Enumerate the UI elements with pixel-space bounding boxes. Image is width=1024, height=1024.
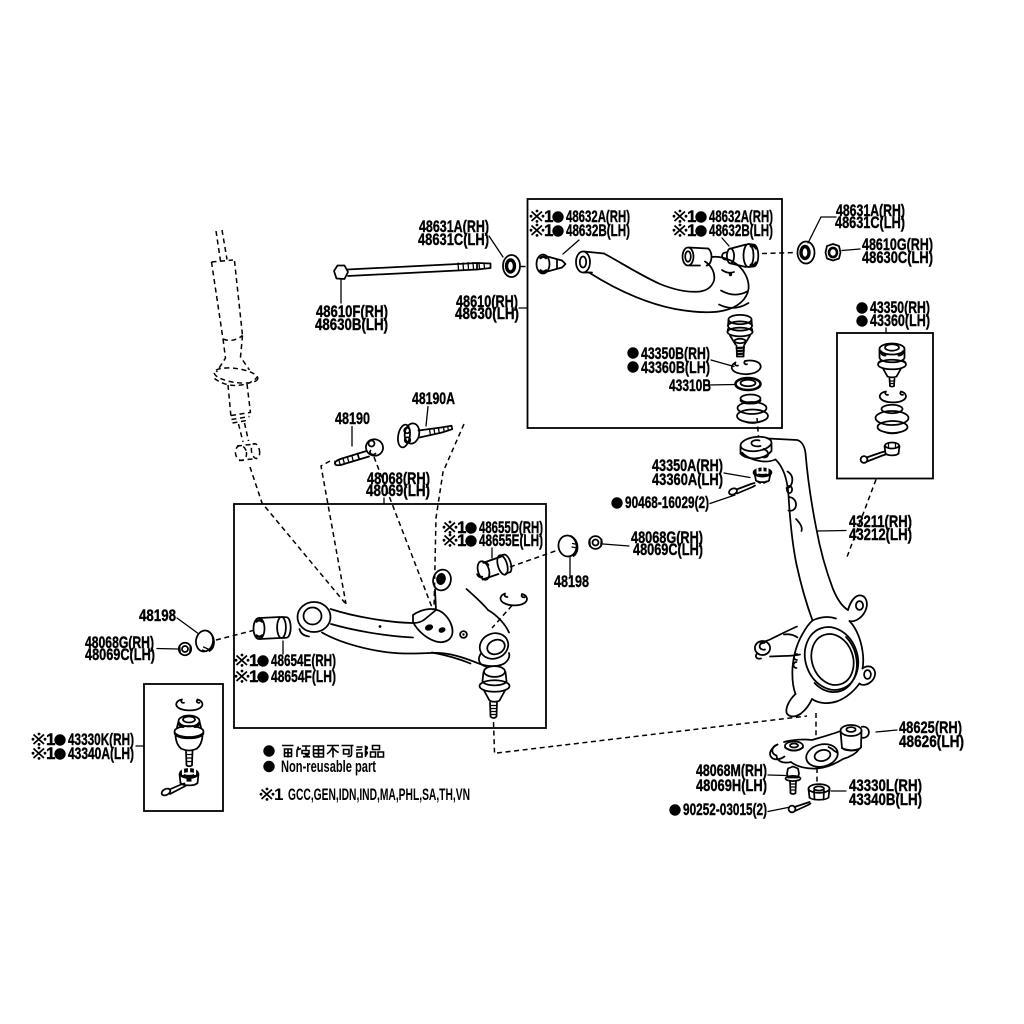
svg-text:43340B(LH): 43340B(LH) xyxy=(849,790,922,809)
svg-text:48069H(LH): 48069H(LH) xyxy=(696,776,767,795)
svg-text:48630C(LH): 48630C(LH) xyxy=(862,248,933,267)
svg-text:48198: 48198 xyxy=(554,572,589,591)
svg-text:48632B(LH): 48632B(LH) xyxy=(709,221,773,240)
svg-text:Non-reusable part: Non-reusable part xyxy=(281,757,376,776)
svg-text:48069C(LH): 48069C(LH) xyxy=(85,645,155,664)
svg-text:43212(LH): 43212(LH) xyxy=(849,525,912,544)
svg-text:48069(LH): 48069(LH) xyxy=(366,481,430,500)
svg-text:48630B(LH): 48630B(LH) xyxy=(315,315,388,334)
svg-text:43360(LH): 43360(LH) xyxy=(870,311,930,330)
svg-text:43310B: 43310B xyxy=(669,376,711,395)
svg-text:48069C(LH): 48069C(LH) xyxy=(633,540,703,559)
svg-text:48655E(LH): 48655E(LH) xyxy=(479,531,543,550)
svg-text:1: 1 xyxy=(46,744,55,763)
svg-text:90468-16029(2): 90468-16029(2) xyxy=(625,493,709,512)
svg-text:48630(LH): 48630(LH) xyxy=(455,304,519,323)
svg-text:43360B(LH): 43360B(LH) xyxy=(641,358,710,377)
svg-text:1: 1 xyxy=(687,221,696,240)
svg-text:48626(LH): 48626(LH) xyxy=(899,732,964,751)
svg-text:48198: 48198 xyxy=(139,606,176,625)
svg-text:48631C(LH): 48631C(LH) xyxy=(835,213,905,232)
svg-text:1: 1 xyxy=(274,785,283,804)
svg-text:90252-03015(2): 90252-03015(2) xyxy=(683,800,767,819)
svg-text:1: 1 xyxy=(544,221,553,240)
svg-text:43340A(LH): 43340A(LH) xyxy=(68,744,134,763)
svg-text:48190A: 48190A xyxy=(412,389,455,408)
svg-text:GCC,GEN,IDN,IND,MA,PHL,SA,TH,V: GCC,GEN,IDN,IND,MA,PHL,SA,TH,VN xyxy=(288,785,470,804)
svg-text:48631C(LH): 48631C(LH) xyxy=(418,230,489,249)
svg-text:1: 1 xyxy=(457,531,466,550)
svg-text:1: 1 xyxy=(249,667,258,686)
svg-text:48654F(LH): 48654F(LH) xyxy=(271,667,336,686)
svg-text:48190: 48190 xyxy=(335,409,370,428)
svg-text:48632B(LH): 48632B(LH) xyxy=(566,221,630,240)
svg-text:43360A(LH): 43360A(LH) xyxy=(652,470,723,489)
